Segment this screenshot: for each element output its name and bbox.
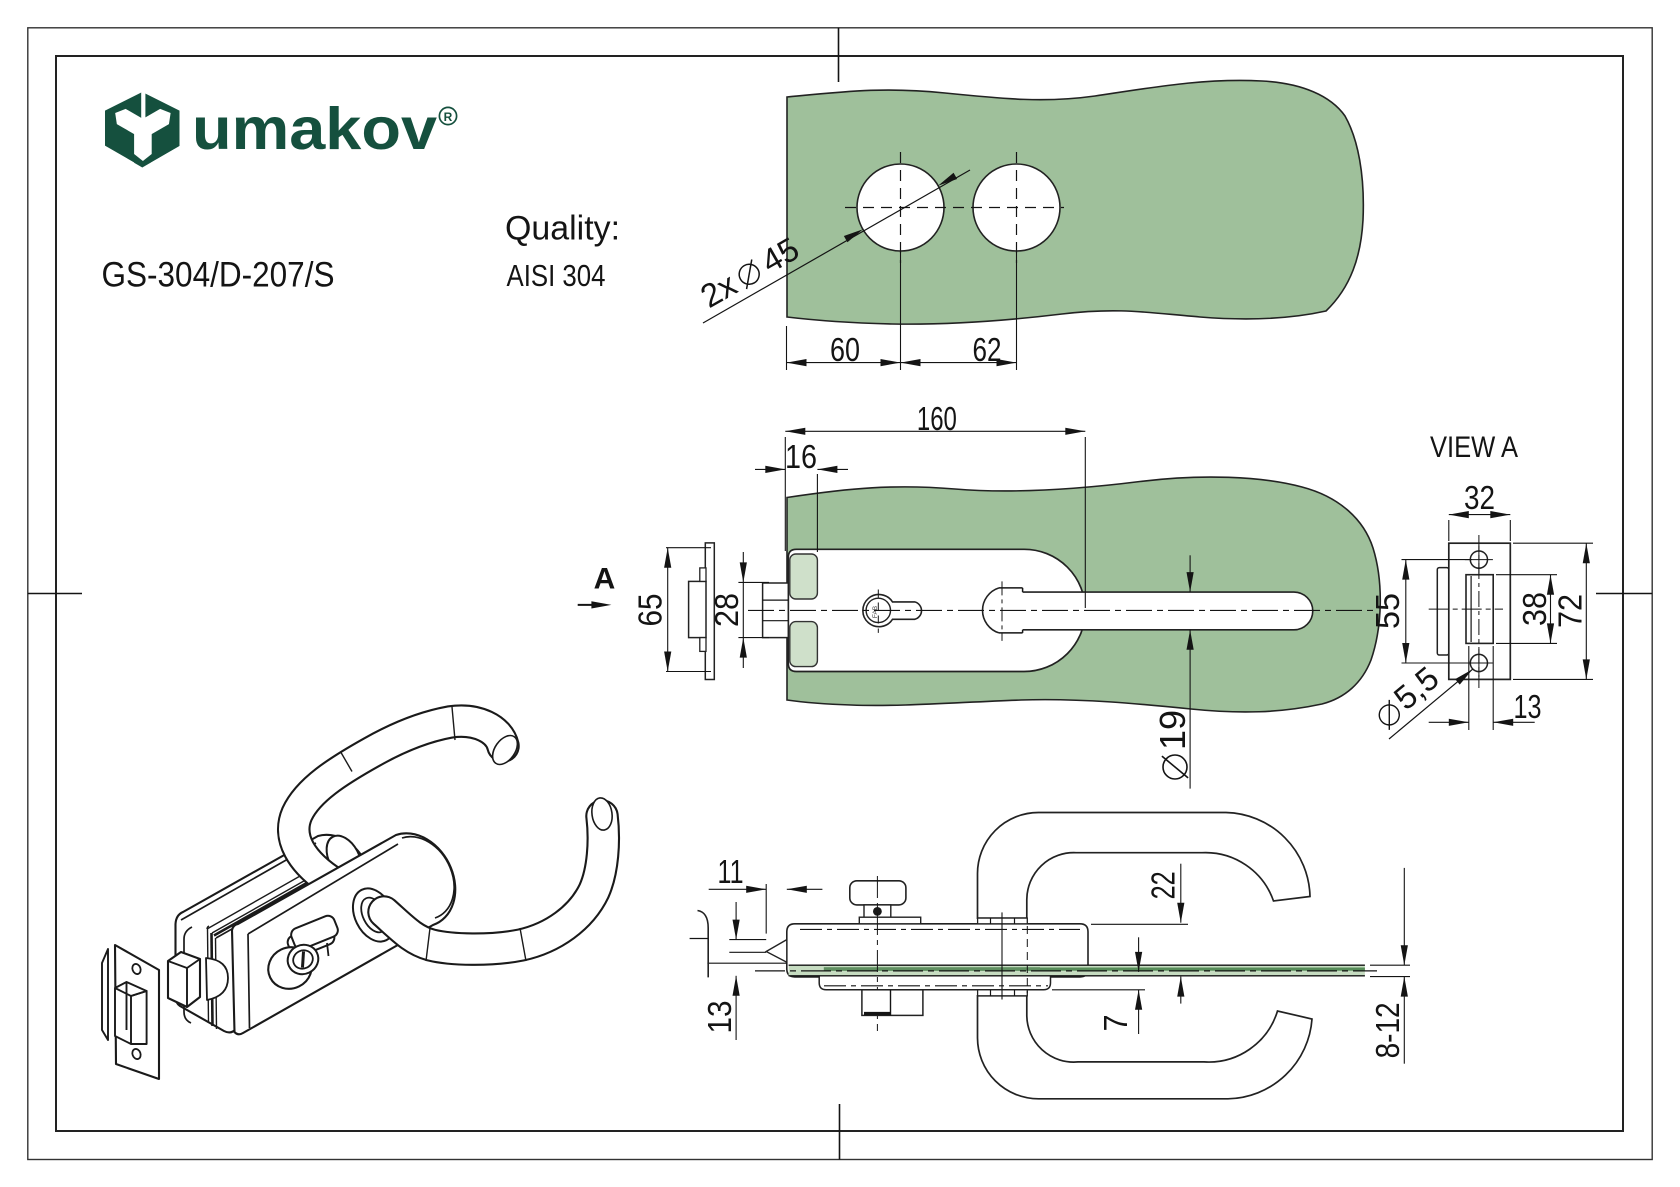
svg-text:Quality:: Quality: xyxy=(505,210,620,248)
svg-text:A: A xyxy=(594,563,616,596)
svg-text:60: 60 xyxy=(830,331,860,368)
svg-text:72: 72 xyxy=(1552,594,1589,628)
svg-text:11: 11 xyxy=(718,853,744,890)
svg-text:16: 16 xyxy=(785,438,817,475)
svg-text:62: 62 xyxy=(973,331,1002,368)
svg-text:28: 28 xyxy=(708,593,745,627)
svg-text:AISI 304: AISI 304 xyxy=(507,258,606,293)
svg-text:8-12: 8-12 xyxy=(1369,1002,1406,1058)
svg-text:R: R xyxy=(444,110,453,124)
svg-text:VIEW A: VIEW A xyxy=(1430,431,1518,464)
svg-text:GS-304/D-207/S: GS-304/D-207/S xyxy=(102,256,335,295)
svg-text:160: 160 xyxy=(917,400,957,437)
svg-text:38: 38 xyxy=(1516,592,1553,626)
svg-text:umakov: umakov xyxy=(192,96,437,162)
svg-text:32: 32 xyxy=(1464,479,1495,516)
svg-text:13: 13 xyxy=(1514,688,1542,725)
svg-text:55: 55 xyxy=(1369,593,1406,629)
svg-text:13: 13 xyxy=(701,1001,738,1034)
svg-text:19: 19 xyxy=(1152,710,1193,750)
svg-text:22: 22 xyxy=(1145,871,1182,899)
svg-text:7: 7 xyxy=(1097,1015,1134,1032)
svg-text:65: 65 xyxy=(632,594,669,627)
